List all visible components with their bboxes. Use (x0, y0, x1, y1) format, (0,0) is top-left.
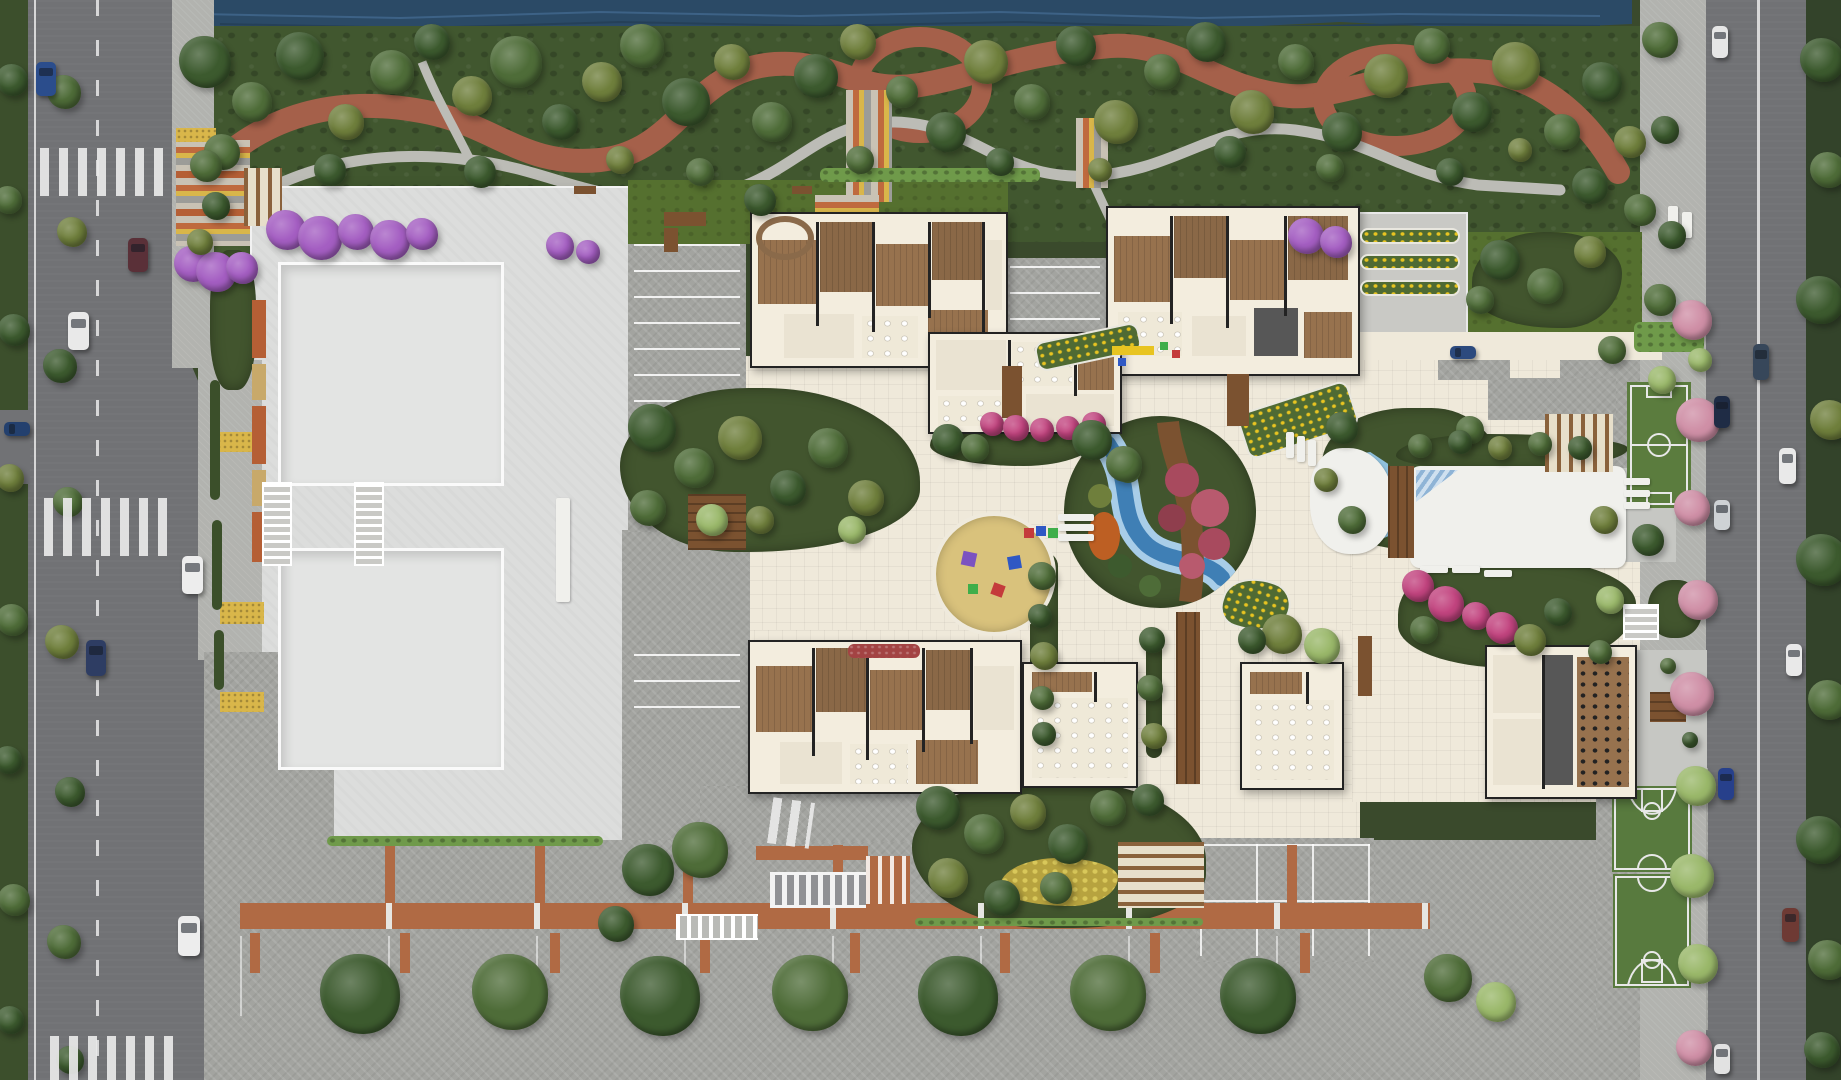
tact-element (220, 692, 264, 712)
planter-element (1360, 254, 1460, 270)
tree (846, 146, 874, 174)
floorplan-room (1230, 240, 1284, 300)
tree (1278, 44, 1314, 80)
tree (964, 40, 1008, 84)
floorplan-wall (928, 222, 931, 318)
woodB-element (1227, 374, 1249, 426)
hedgeD-element (212, 520, 222, 610)
flowering-tree (1672, 300, 1712, 340)
tree (1488, 436, 1512, 460)
tree (1106, 446, 1142, 482)
floorplan-room (784, 314, 854, 358)
tact-element (220, 602, 264, 624)
tree (1514, 624, 1546, 656)
whiteRect-element (1452, 566, 1480, 573)
floorplan-room (1192, 316, 1246, 356)
gapW-element (534, 903, 540, 929)
tree (1796, 816, 1841, 864)
tree (320, 954, 400, 1034)
tree (1598, 336, 1626, 364)
lineW-element (34, 0, 36, 1080)
floorplan-room (1304, 312, 1352, 358)
tree (452, 76, 492, 116)
car-windshield (1788, 650, 1799, 658)
car (128, 238, 148, 272)
tree (746, 506, 774, 534)
woodB-element (1002, 366, 1022, 418)
flower-shrub (1030, 418, 1054, 442)
woodB-element (664, 228, 678, 252)
car-windshield (1716, 402, 1727, 410)
tree (1796, 276, 1841, 324)
toyP-element (961, 551, 978, 568)
accO-element (252, 406, 266, 464)
crosswalk (50, 1036, 178, 1080)
toyB-element (1036, 526, 1046, 536)
tree (1141, 723, 1167, 749)
floorplan-room (1493, 655, 1541, 713)
tree (672, 822, 728, 878)
car-windshield (1716, 1049, 1727, 1056)
floorplan-wall (970, 648, 973, 744)
flowering-tree (838, 516, 866, 544)
tree (47, 925, 81, 959)
tree (1014, 84, 1050, 120)
perg-element (1118, 842, 1204, 908)
tree (490, 36, 542, 88)
flowering-tree (1676, 1030, 1712, 1066)
floorplan-wall (872, 222, 875, 332)
flower-shrub (226, 252, 258, 284)
floorplan-room (876, 244, 928, 306)
car (1714, 500, 1730, 530)
tree (1030, 642, 1058, 670)
floorplan-room (1254, 308, 1298, 356)
whiteRect-element (1484, 570, 1512, 577)
tree (840, 24, 876, 60)
tree (1582, 62, 1622, 102)
accR-element (385, 845, 395, 903)
whiteRect-element (556, 498, 570, 602)
flowering-tree (1648, 366, 1676, 394)
tree (1660, 658, 1676, 674)
tree (1408, 434, 1432, 458)
whiteRect-element (1286, 432, 1294, 458)
tree (1070, 955, 1146, 1031)
tree (1682, 732, 1698, 748)
car-windshield (1455, 348, 1462, 357)
car (36, 62, 56, 96)
floorplan-wall (1542, 655, 1545, 789)
car (1714, 1044, 1730, 1074)
tree (1048, 824, 1088, 864)
accR-element (1000, 933, 1010, 973)
tree (1410, 616, 1438, 644)
flower-shrub (406, 218, 438, 250)
toyR-element (1172, 350, 1180, 358)
tree (542, 104, 578, 140)
toyY-element (1112, 346, 1154, 355)
tree (1230, 90, 1274, 134)
tree (1658, 221, 1686, 249)
tree (276, 32, 324, 80)
tree (1480, 240, 1520, 280)
band-element (756, 846, 868, 860)
car (1779, 448, 1796, 484)
tree (808, 428, 848, 468)
tree (57, 217, 87, 247)
woodB-element (792, 186, 812, 194)
tree (1137, 675, 1163, 701)
ringB-element (756, 216, 814, 260)
tree (1590, 506, 1618, 534)
gapW-element (386, 903, 392, 929)
car (1712, 26, 1728, 58)
car-windshield (1716, 505, 1727, 512)
floorplan-room (870, 670, 922, 730)
floorplan-room (1493, 719, 1541, 785)
tree (1466, 286, 1494, 314)
flower-shrub (1288, 218, 1324, 254)
tree (606, 146, 634, 174)
deckV-element (1388, 466, 1414, 558)
flowering-tree (1670, 854, 1714, 898)
car-windshield (71, 319, 86, 328)
flowering-tree (696, 504, 728, 536)
flowering-tree (1688, 348, 1712, 372)
flowering-tree (1678, 580, 1718, 620)
tree (1574, 236, 1606, 268)
woodB-element (574, 186, 596, 194)
floorplan-room (1250, 700, 1334, 780)
tree (1094, 100, 1138, 144)
tree (0, 604, 28, 636)
car (1786, 644, 1802, 676)
hedgeD-element (210, 380, 220, 500)
accR-element (535, 845, 545, 903)
floorplan-wall (922, 648, 925, 752)
floorplan-room (926, 650, 970, 710)
tree (630, 490, 666, 526)
floorplan-room (1577, 657, 1629, 787)
tree (718, 416, 762, 460)
tree (1090, 790, 1126, 826)
gapW-element (1274, 903, 1280, 929)
tree (620, 24, 664, 68)
accT-element (252, 364, 266, 400)
tree (1072, 420, 1112, 460)
whiteRect-element (1624, 490, 1650, 497)
tree (1314, 468, 1338, 492)
flowering-tree (1670, 672, 1714, 716)
car (1782, 908, 1799, 942)
whiteRect-element (1308, 440, 1316, 466)
tree (1651, 116, 1679, 144)
floorplan-room (916, 740, 978, 784)
flowering-tree (1596, 586, 1624, 614)
accR-element (1287, 845, 1297, 903)
floorplan-room (862, 316, 918, 358)
tree (0, 1006, 24, 1034)
tree (1588, 640, 1612, 664)
tree (1322, 112, 1362, 152)
flower-shrub (1003, 415, 1029, 441)
tree (1028, 562, 1056, 590)
tree (622, 844, 674, 896)
site-plan-canvas: Aerial masterplan site plan of a residen… (0, 0, 1841, 1080)
whiteRect-element (1624, 502, 1650, 509)
tree (772, 955, 848, 1031)
floorplan-wall (812, 648, 815, 756)
tree (314, 154, 346, 186)
tree (1424, 954, 1472, 1002)
whiteRect-element (1058, 514, 1094, 521)
tree (1214, 136, 1246, 168)
tree (932, 424, 964, 456)
floorplan-room (986, 240, 1002, 310)
car (1714, 396, 1730, 428)
tower-2-footprint (278, 548, 504, 770)
whiteRect-element (1058, 534, 1094, 541)
toyB-element (1007, 555, 1022, 570)
floorplan-wall (1170, 216, 1173, 324)
tree (984, 880, 1020, 916)
accR-element (1150, 933, 1160, 973)
tree (0, 884, 30, 916)
woodB-element (1358, 636, 1372, 696)
car-windshield (89, 646, 103, 655)
tree (1508, 138, 1532, 162)
flowering-tree (1678, 944, 1718, 984)
tree (1448, 430, 1472, 454)
deckV-element (1176, 612, 1200, 784)
car (1718, 768, 1734, 800)
flower-shrub (1428, 586, 1464, 622)
tree (770, 470, 806, 506)
ramp2-element (676, 914, 758, 940)
floorplan-room (936, 340, 1006, 390)
car (68, 312, 89, 350)
tree (1528, 432, 1552, 456)
floorplan-room (850, 744, 908, 784)
tree (964, 814, 1004, 854)
tree (1186, 22, 1226, 62)
tree (55, 777, 85, 807)
car-windshield (39, 68, 53, 76)
tree (1800, 38, 1841, 82)
tree (1644, 284, 1676, 316)
tree (1139, 627, 1165, 653)
car-windshield (1755, 350, 1766, 359)
tree (1624, 194, 1656, 226)
flower-shrub (546, 232, 574, 260)
tree (1614, 126, 1646, 158)
redhedge-element (848, 644, 920, 658)
accR-element (1300, 933, 1310, 973)
woodB-element (664, 212, 706, 226)
toyR-element (1024, 528, 1034, 538)
tree (202, 192, 230, 220)
tree (1568, 436, 1592, 460)
tree (752, 102, 792, 142)
gapW-element (1422, 903, 1428, 929)
tree (918, 956, 998, 1036)
floorplan-room (1250, 672, 1302, 694)
whiteRect-element (1058, 524, 1094, 531)
hedge-element (915, 918, 1203, 926)
flowering-tree (1674, 490, 1710, 526)
tree (1238, 626, 1266, 654)
tree (1010, 794, 1046, 830)
tree (472, 954, 548, 1030)
stair-element (262, 482, 292, 566)
tree (1028, 604, 1052, 628)
toyG-element (1160, 342, 1168, 350)
crosswalk (767, 797, 815, 848)
tree (414, 24, 450, 60)
tree (1452, 92, 1492, 132)
building-floorplan-6 (1240, 662, 1344, 790)
car-windshield (131, 244, 145, 252)
tree (0, 186, 22, 214)
tree (1544, 598, 1572, 626)
building-floorplan-4 (748, 640, 1022, 794)
tree (464, 156, 496, 188)
tree (1088, 158, 1112, 182)
stripes1-element (846, 90, 892, 202)
accR-element (850, 933, 860, 973)
crosswalk (44, 498, 174, 556)
floorplan-room (974, 666, 1014, 730)
car (1450, 346, 1476, 359)
flower-shrub (370, 220, 410, 260)
floorplan-room (1174, 216, 1226, 278)
car-windshield (1720, 774, 1731, 782)
tree (1132, 784, 1164, 816)
hedge-element (327, 836, 603, 846)
tree (370, 50, 414, 94)
whiteRect-element (1624, 478, 1650, 485)
flower-shrub (298, 216, 342, 260)
tree (45, 625, 79, 659)
tree (1030, 686, 1054, 710)
car-windshield (9, 424, 16, 434)
car-windshield (1714, 32, 1725, 40)
tree (628, 404, 676, 452)
tree (1040, 872, 1072, 904)
car (182, 556, 203, 594)
tree (598, 906, 634, 942)
tree (744, 184, 776, 216)
tree (1220, 958, 1296, 1034)
car (1753, 344, 1769, 380)
tree (0, 64, 28, 96)
floorplan-room (756, 666, 812, 732)
floorplan-wall (1284, 216, 1287, 316)
stallH-element (634, 654, 740, 726)
tree (328, 104, 364, 140)
lineW-element (1757, 0, 1760, 1080)
flower-shrub (980, 412, 1004, 436)
floorplan-wall (1306, 672, 1309, 704)
car-windshield (1782, 454, 1794, 463)
accR-element (550, 933, 560, 973)
tree (1527, 268, 1563, 304)
tree (620, 956, 700, 1036)
tree (1492, 42, 1540, 90)
tree (986, 148, 1014, 176)
building-floorplan-7 (1485, 645, 1637, 799)
tree (662, 78, 710, 126)
stair-element (354, 482, 384, 566)
accO-element (252, 300, 266, 358)
flower-shrub (338, 214, 374, 250)
tree (1414, 28, 1450, 64)
whiteRect-element (1297, 436, 1305, 462)
floorplan-room (1114, 236, 1170, 302)
tree (686, 158, 714, 186)
tree (187, 229, 213, 255)
toyG-element (968, 584, 978, 594)
accR-element (250, 933, 260, 973)
tree (1326, 412, 1358, 444)
floorplan-room (820, 222, 872, 292)
flower-shrub (576, 240, 600, 264)
car (4, 422, 30, 436)
car-windshield (185, 563, 200, 572)
crosswalk (40, 148, 166, 196)
tree (928, 858, 968, 898)
ramp-element (770, 872, 866, 908)
tree (1262, 614, 1302, 654)
floorplan-room (932, 222, 982, 280)
floorplan-room (1545, 655, 1573, 785)
tree (1032, 722, 1056, 746)
tree (926, 112, 966, 152)
floorplan-wall (1094, 672, 1097, 702)
tree (0, 746, 22, 774)
tree (190, 150, 222, 182)
planter-element (1360, 280, 1460, 296)
tree (0, 464, 24, 492)
tree (179, 36, 231, 88)
tree (0, 314, 30, 346)
tree (674, 448, 714, 488)
floorplan-room (780, 742, 842, 784)
tree (1632, 524, 1664, 556)
accR-element (400, 933, 410, 973)
tree (43, 349, 77, 383)
flowering-tree (1676, 766, 1716, 806)
floorplan-wall (816, 222, 819, 326)
floorplan-wall (866, 648, 869, 760)
tree (1544, 114, 1580, 150)
tree (1316, 154, 1344, 182)
stair-element (1623, 604, 1659, 640)
floorplan-wall (982, 222, 985, 342)
tree (961, 434, 989, 462)
tree (714, 44, 750, 80)
tree (1056, 26, 1096, 66)
tree (794, 54, 838, 98)
flowering-tree (1304, 628, 1340, 664)
tower-1-footprint (278, 262, 504, 486)
tree (1436, 158, 1464, 186)
tree (232, 82, 272, 122)
tree (1364, 54, 1408, 98)
tree (582, 62, 622, 102)
tree (1572, 168, 1608, 204)
